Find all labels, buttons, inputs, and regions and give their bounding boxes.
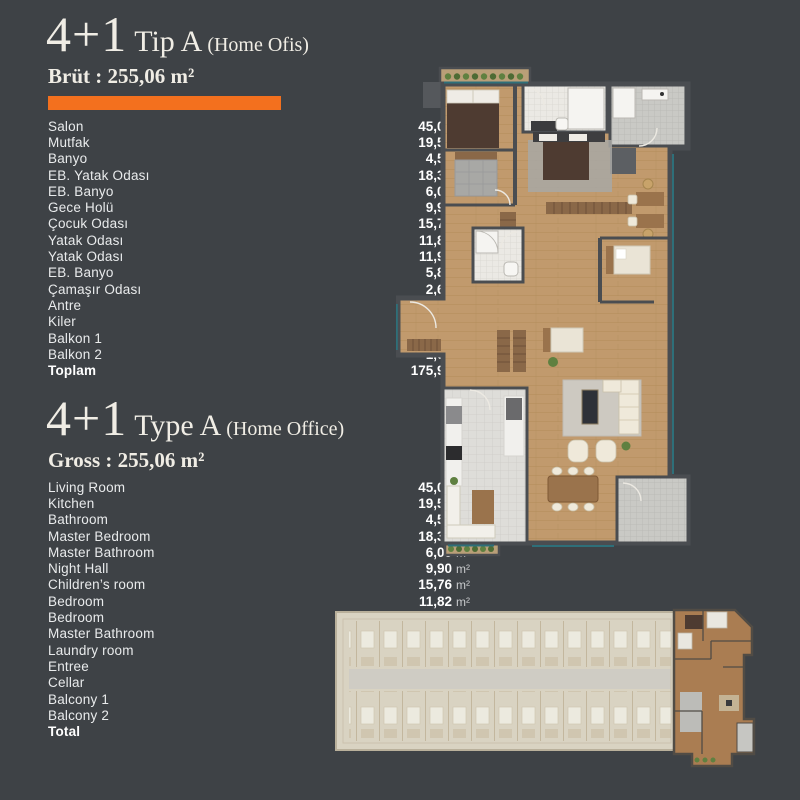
room-label: Yatak Odası [48,233,124,248]
highlighted-unit [674,610,754,766]
building-slab-faded [336,612,678,750]
room-label: Master Bathroom [48,626,155,641]
room-label: Çocuk Odası [48,216,128,231]
accent-bar [48,96,281,110]
unit-variant: Tip A [134,25,202,58]
room-label: Mutfak [48,135,90,150]
unit-variant: Type A [134,409,221,442]
kitchen [443,388,527,543]
neighbour-wall [423,82,443,108]
unit-note: (Home Ofis) [207,34,309,56]
bedroom-middle [528,132,612,192]
room-label: Antre [48,298,81,313]
room-label: Children’s room [48,577,145,592]
room-label: Bathroom [48,512,108,527]
area-unit: m² [456,562,470,576]
room-area: 9,90m² [374,561,470,576]
room-label: Living Room [48,480,125,495]
room-label: Yatak Odası [48,249,124,264]
key-plan [333,607,785,772]
area-unit: m² [456,578,470,592]
room-label: Balcony 2 [48,708,109,723]
room-label: Balkon 2 [48,347,102,362]
room-label: Salon [48,119,84,134]
room-area-value: 9,90 [426,561,452,576]
room-label: Entree [48,659,89,674]
room-label: Total [48,724,80,739]
main-floor-plan [396,62,700,562]
room-label: Night Hall [48,561,109,576]
unit-note: (Home Office) [226,418,344,440]
room-label: Master Bathroom [48,545,155,560]
room-label: Cellar [48,675,84,690]
room-row: Children’s room15,76m² [48,577,470,593]
room-label: Balcony 1 [48,692,109,707]
room-label: Çamaşır Odası [48,282,141,297]
unit-type: 4+1 [46,390,127,446]
room-label: EB. Yatak Odası [48,168,150,183]
bedroom-master [447,90,499,148]
room-label: Balkon 1 [48,331,102,346]
planter-plants [445,73,523,79]
room-label: Bedroom [48,610,104,625]
main-floor-plan-drawing [396,62,700,562]
room-label: Toplam [48,363,96,378]
room-label: EB. Banyo [48,265,114,280]
bathroom-middle [473,228,523,282]
key-plan-drawing [333,607,785,772]
room-row: Night Hall9,90m² [48,560,470,576]
room-label: EB. Banyo [48,184,114,199]
room-area: 15,76m² [374,577,470,592]
room-label: Banyo [48,151,87,166]
balcony-bottom-right [617,477,688,543]
room-area-value: 15,76 [418,577,452,592]
dining-area [548,467,598,511]
unit-type: 4+1 [46,6,127,62]
room-label: Kitchen [48,496,94,511]
room-label: Kiler [48,314,76,329]
room-label: Bedroom [48,594,104,609]
room-label: Master Bedroom [48,529,151,544]
unit-title-turkish: 4+1Tip A(Home Ofis) [46,8,472,60]
corridor-wardrobe [546,202,632,214]
room-label: Gece Holü [48,200,114,215]
page: { "unit": "m²", "palette": { "background… [0,0,800,800]
bedroom-guest-bed [543,328,583,352]
room-label: Laundry room [48,643,134,658]
bathroom-top [523,85,607,132]
